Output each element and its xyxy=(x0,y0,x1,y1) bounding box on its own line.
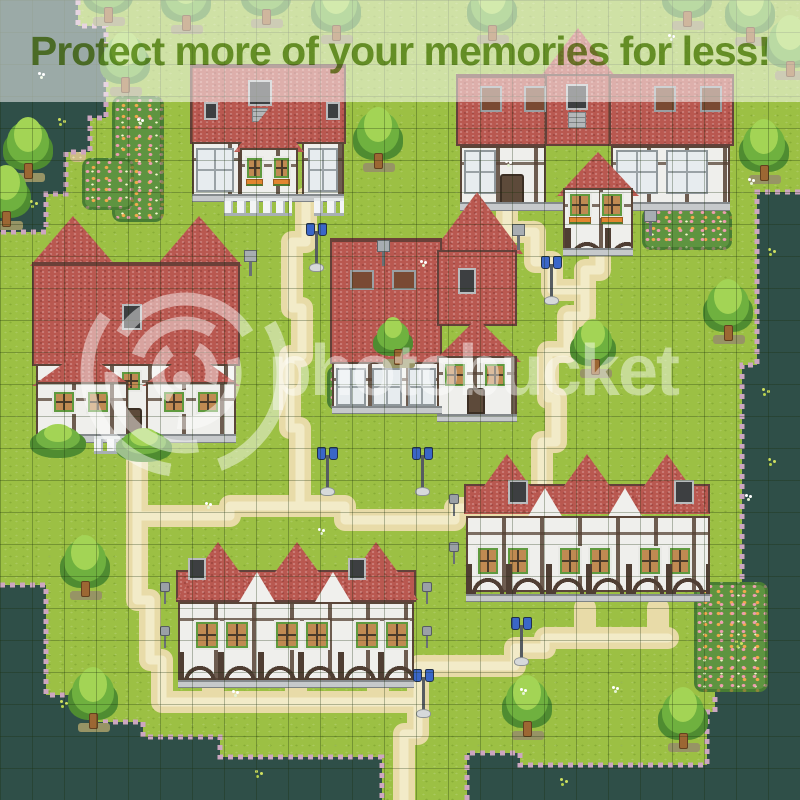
watermark-text: photobucket xyxy=(268,330,678,412)
banner-text: Protect more of your memories for less! xyxy=(0,0,800,102)
watermark-shutter-logo xyxy=(70,258,300,488)
map-canvas[interactable]: Protect more of your memories for less! … xyxy=(0,0,800,800)
promo-banner: Protect more of your memories for less! xyxy=(0,0,800,102)
